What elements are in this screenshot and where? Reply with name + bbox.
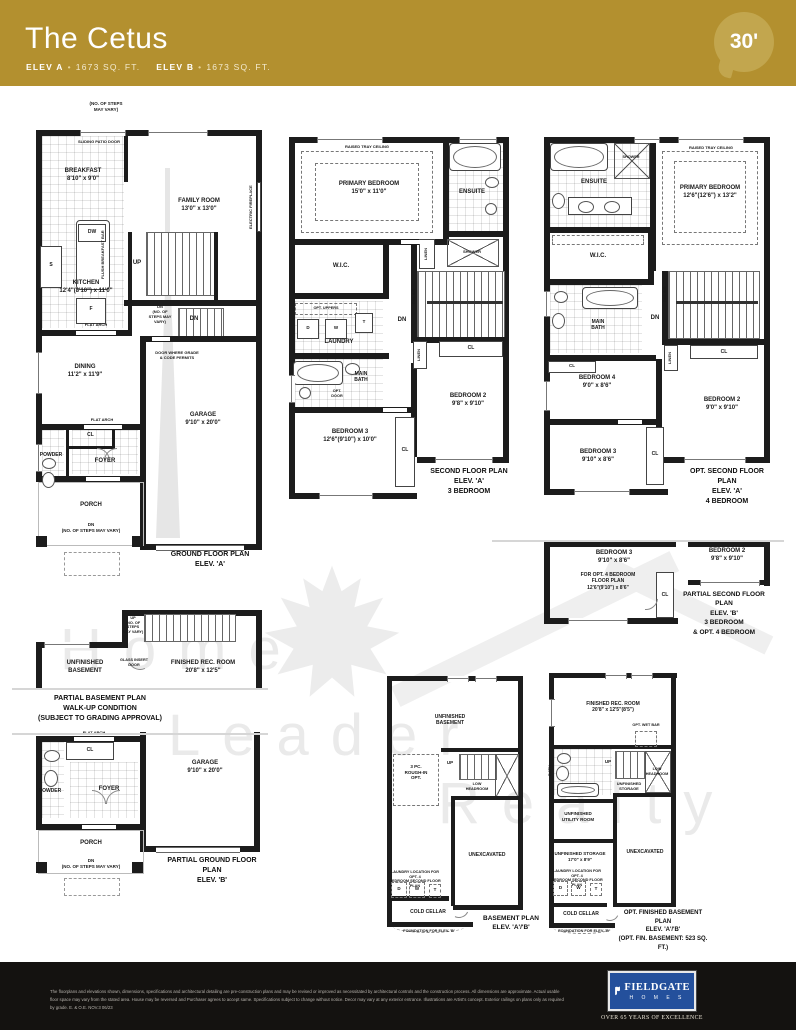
window [700,580,760,586]
toilet-icon [552,313,565,329]
room-ensuite: ENSUITE [449,189,495,197]
wall [544,279,654,285]
closet-label: CL [548,363,596,369]
fridge-label: F [76,306,106,312]
linen-label: LINEN [423,243,431,265]
stairs-dn-label: DN [393,317,411,325]
window [475,676,497,682]
low-headroom-note: LOW HEADROOM [459,782,495,791]
entry-steps [64,878,120,896]
window [36,352,42,394]
window [634,137,660,143]
room-garage: GARAGE 9'10" x 20'0" [164,760,246,775]
washer-label: W [325,325,347,331]
breakfast-bar-label: FLUSH BREAKFAST BAR [100,224,108,286]
flat-arch-opening [74,737,114,741]
shower-label: SHOWER [447,249,497,254]
wall [544,227,656,233]
wall [544,542,550,624]
floorplan-sheet: The Cetus ELEV A•1673 SQ. FT.ELEV B•1673… [0,0,796,1030]
stair-rail [676,301,758,304]
tub-label: T [429,887,441,893]
stairs-up-label: UP [601,759,615,765]
logo-subtitle: H O M E S [624,995,690,1001]
room-bed4: BEDROOM 4 9'0" x 8'6" [558,375,636,390]
room-dining: DINING 11'2" x 11'9" [50,364,120,379]
bathtub-icon [582,287,638,309]
room-main-bath: MAIN BATH [580,319,616,332]
foundation-note: FOUNDATION FOR ELEV. 'B' [397,929,461,934]
closet-label: CL [439,345,503,351]
wall [671,673,676,907]
window [447,676,469,682]
cut-line [12,733,268,735]
flat-arch-opening [84,425,122,429]
wall [764,137,770,463]
wall [549,839,615,843]
wall [289,293,389,299]
wall [289,137,295,499]
elev-a-label: ELEV A [26,62,64,72]
stairs-dn-label: DN [646,315,664,323]
side-door-opening [152,337,170,341]
walkup-steps-note: UP (NO. OF STEPS MAY VARY) [122,616,144,635]
front-door-opening [82,825,116,829]
window [435,457,493,463]
linen-label: LINEN [416,343,424,367]
stairs-down [668,271,760,339]
room-rec: FINISHED REC. ROOM 20'8" x 12'5" [156,660,250,675]
opt-door-note: OPT. DOOR [325,389,349,398]
logo-text: FIELDGATE H O M E S [624,982,690,1001]
wall [256,306,262,550]
sink-icon [557,753,571,764]
closet-label: CL [656,592,674,598]
room-ensuite: ENSUITE [566,179,622,187]
elev-a-sqft: 1673 SQ. FT. [76,62,140,72]
wall [112,428,115,449]
room-powder: POWDER [32,788,68,794]
stairs-up [144,614,236,642]
wall [36,642,42,688]
plan-caption: OPT. FINISHED BASEMENT PLAN ELEV. 'A'/'B… [615,909,711,952]
badge-tail [716,60,734,78]
sink-icon [604,201,620,213]
plan-ground-floor-elev-a: (NO. OF STEPS MAY VARY) SLIDING PATIO DO… [28,112,268,592]
sail-icon [614,978,621,1004]
header: The Cetus ELEV A•1673 SQ. FT.ELEV B•1673… [0,0,796,86]
room-main-bath: MAIN BATH [343,371,379,384]
window [605,673,627,679]
patio-door-label: SLIDING PATIO DOOR [64,139,134,144]
window [44,642,90,648]
toilet-icon [485,177,499,188]
room-cold-cellar: COLD CELLAR [559,911,603,917]
window [289,375,295,403]
room-unexcavated: UNEXCAVATED [461,852,513,858]
window [549,699,555,727]
room-bed2: BEDROOM 2 9'8" x 9'10" [431,393,505,408]
room-bath: BATH [547,761,555,781]
sink-label: S [40,262,62,268]
window [568,618,628,624]
wall [613,793,617,907]
window [317,137,383,143]
room-porch: PORCH [64,840,118,848]
window [678,137,744,143]
wet-bar-outline [635,731,657,747]
window [631,673,653,679]
window [148,130,208,136]
entry-steps [64,552,120,576]
plan-basement: UNFINISHED BASEMENT 3 PC. ROUGH-IN OPT. … [383,670,543,938]
storage-label: UNFINISHED STORAGE [613,781,645,791]
fireplace-label: ELECTRIC FIREPLACE [248,174,256,240]
foundation-note: FOUNDATION FOR ELEV. 'B' [553,929,615,934]
room-foyer: FOYER [80,458,130,466]
lot-width-badge: 30' [714,12,774,72]
stairs-down [417,271,505,339]
plan-partial-basement-walkup: UP (NO. OF STEPS MAY VARY) GLASS INSERT … [28,608,266,726]
room-laundry: LAUNDRY [309,339,369,347]
tub-label: T [590,886,602,892]
fieldgate-logo: FIELDGATE H O M E S [608,971,696,1011]
room-cold-cellar: COLD CELLAR [405,909,451,915]
stair-rail [427,301,503,304]
dryer-label: D [391,886,407,892]
wall [36,736,42,824]
plan-opt-finished-basement: FINISHED REC. ROOM 20'8" x 12'5"(8'5") O… [543,665,711,937]
washer-label: W [571,885,586,891]
wall [256,610,262,688]
door-opening [383,408,407,412]
closet-label: CL [395,447,415,453]
window [544,291,550,317]
room-primary: PRIMARY BEDROOM 15'0" x 11'0" [325,181,413,196]
bullet: • [68,62,72,72]
room-bed3: BEDROOM 3 9'10" x 8'6" [572,550,656,565]
wall [383,245,389,299]
room-bed3: BEDROOM 3 12'6"(9'10") x 10'0" [305,429,395,444]
room-primary: PRIMARY BEDROOM 12'6"(12'6") x 13'2" [664,185,756,200]
logo-tagline: OVER 65 YEARS OF EXCELLENCE [598,1015,706,1021]
room-powder: POWDER [34,452,68,458]
room-unexcavated: UNEXCAVATED [623,849,667,855]
room-unfinished-basement: UNFINISHED BASEMENT [48,660,122,675]
linen-label: LINEN [667,347,675,369]
cross-brace [495,754,519,798]
door-opening [618,420,642,424]
railing-label: RAILING [412,281,418,311]
washer-label: W [409,886,425,892]
room-foyer: FOYER [84,786,134,794]
lot-width-value: 30' [730,30,758,54]
stairs-up-label: UP [128,260,146,268]
wall [443,231,509,237]
wall [549,745,615,749]
window [574,489,630,495]
closet-label: CL [690,349,758,355]
toilet-icon [42,472,55,488]
wet-bar-label: OPT. WET BAR [629,723,663,728]
patio-door [80,130,126,136]
wall [648,233,654,285]
bathtub-icon [293,361,343,385]
closet-rod [552,235,644,245]
elev-b-sqft: 1673 SQ. FT. [206,62,270,72]
closet-label: CL [66,747,114,753]
sink-icon [44,750,60,762]
wall [613,903,676,907]
dryer-label: D [297,325,319,331]
stairs-dn-note: DN (NO. OF STEPS MAY VARY) [144,304,176,324]
rough-in-label: 3 PC. ROUGH-IN OPT. [397,764,435,781]
room-utility: UNFINISHED UTILITY ROOM [553,811,603,822]
wall [544,419,662,425]
plan-caption: PARTIAL GROUND FLOOR PLAN ELEV. 'B' [158,856,266,886]
plan-caption: SECOND FLOOR PLAN ELEV. 'A' 3 BEDROOM [427,467,511,497]
cut-line [12,688,268,690]
wall [128,232,132,336]
wall [549,799,615,803]
room-kitchen: KITCHEN 12'4"(8'10") x 11'0" [46,280,126,295]
elev-b-label: ELEV B [156,62,194,72]
toilet-icon [44,770,58,787]
room-wic: W.I.C. [570,253,626,261]
sink-icon [485,203,497,215]
front-door-opening [86,477,120,481]
plan-caption: PARTIAL SECOND FLOOR PLAN ELEV. 'B' 3 BE… [674,590,774,637]
low-headroom-note: LOW HEADROOM [643,767,671,776]
wall [289,353,389,359]
window [319,493,373,499]
shower-label: SHOWER [614,155,648,160]
stairs-up-label: UP [443,760,457,766]
bullet: • [198,62,202,72]
sink-icon [299,387,311,399]
room-family: FAMILY ROOM 13'0" x 13'0" [146,198,252,213]
wall [549,903,607,907]
steps-note: (NO. OF STEPS MAY VARY) [70,101,142,112]
plan-partial-second-floor-elev-b: BEDROOM 3 9'10" x 8'6" FOR OPT. 4 BEDROO… [538,538,774,638]
stairs-up [615,751,645,779]
closet-label: CL [646,451,664,457]
porch-outline [38,482,144,546]
sink-icon [554,291,568,303]
wall [656,359,662,425]
wall [451,796,521,800]
wall [254,732,260,852]
garage-door [156,847,240,853]
window [684,457,746,463]
toilet-icon [556,766,569,781]
plan-caption: PARTIAL BASEMENT PLAN WALK-UP CONDITION … [28,694,172,724]
wall [544,542,676,547]
wall [124,130,128,182]
disclaimer-text: The floorplans and elevations shown, dim… [50,988,580,1012]
bathtub-icon [550,143,608,171]
porch-post [132,536,143,547]
porch-post [36,536,47,547]
flat-arch-opening [76,331,116,335]
opt4-note: FOR OPT. 4 BEDROOM FLOOR PLAN 12'6"(9'10… [562,572,654,591]
room-storage: UNFINISHED STORAGE 17'0" x 8'9" [551,851,609,862]
plan-caption: BASEMENT PLAN ELEV. 'A'/'B' [481,914,541,933]
tub-label: T [355,319,373,325]
dryer-label: D [553,885,568,891]
flat-arch-label: FLAT ARCH [76,322,116,327]
stairs-dn-label: DN [184,316,204,324]
elevation-summary: ELEV A•1673 SQ. FT.ELEV B•1673 SQ. FT. [26,62,271,72]
room-bed3: BEDROOM 3 9'10" x 8'6" [558,449,638,464]
tray-ceiling-label: RAISED TRAY CEILING [323,144,411,149]
room-rec: FINISHED REC. ROOM 20'8" x 12'5"(8'5") [573,701,653,714]
porch-steps-note: DN (NO. OF STEPS MAY VARY) [54,522,128,533]
plan-opt-second-floor-elev-a: SHOWER ENSUITE RAISED TRAY CEILING PRIMA… [538,131,774,509]
porch-post [132,862,143,873]
footer: The floorplans and elevations shown, dim… [0,962,796,1030]
closet-label: CL [69,432,112,438]
room-porch: PORCH [64,502,118,510]
wall [441,748,523,752]
porch-steps-note: DN (NO. OF STEPS MAY VARY) [54,858,128,869]
plan-partial-ground-floor-elev-b: FLAT ARCH CL POWDER FOYER GARAGE 9'10" x… [28,730,268,898]
room-breakfast: BREAKFAST 8'10" x 9'0" [46,168,120,183]
sink-icon [42,458,56,469]
opt-uppers-label: OPT. UPPERS [295,306,357,311]
wall [451,796,455,906]
shower-icon [614,143,650,179]
porch-post [36,862,47,873]
room-unfinished-basement: UNFINISHED BASEMENT [417,714,483,727]
plan-second-floor-elev-a: RAISED TRAY CEILING PRIMARY BEDROOM 15'0… [283,131,515,509]
tray-ceiling-label: RAISED TRAY CEILING [668,145,754,150]
bathtub-icon [557,783,599,797]
room-bed2: BEDROOM 2 9'8" x 9'10" [690,548,764,563]
plan-caption: GROUND FLOOR PLAN ELEV. 'A' [156,550,264,570]
railing-label: RAILING [663,279,669,309]
grade-door-note: DOOR WHERE GRADE & CODE PERMITS [152,350,202,360]
flat-arch-label: FLAT ARCH [82,417,122,422]
cut-line [492,540,784,542]
sink-icon [578,201,594,213]
room-garage: GARAGE 9'10" x 20'0" [162,412,244,427]
bathtub-icon [449,143,501,171]
window [459,137,497,143]
wall [613,793,676,797]
fireplace-box [257,182,261,232]
stairs-up [146,232,216,296]
toilet-icon [552,193,565,209]
plan-caption: OPT. SECOND FLOOR PLAN ELEV. 'A' 4 BEDRO… [684,467,770,508]
room-bed2: BEDROOM 2 9'0" x 9'10" [684,397,760,412]
wall [688,542,766,547]
logo-name: FIELDGATE [624,982,690,993]
room-wic: W.I.C. [313,263,369,271]
stairs-up [459,754,497,780]
page-title: The Cetus [25,22,168,56]
wall [214,232,218,300]
window [544,381,550,411]
